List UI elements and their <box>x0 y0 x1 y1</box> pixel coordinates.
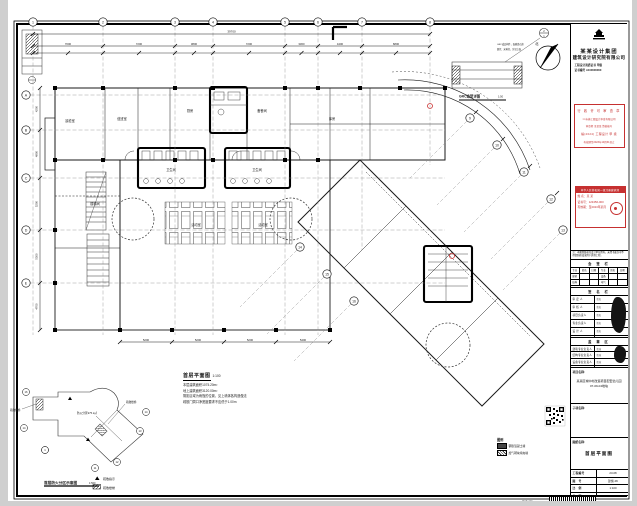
grid-bubble-label: 6 <box>317 20 319 24</box>
bed-arrays <box>165 202 292 244</box>
wall-detail-topleft <box>22 30 42 84</box>
column-mark <box>316 86 320 90</box>
keyplan-bubble-label: 14 <box>23 426 26 430</box>
north-label: 北 <box>535 41 539 46</box>
dim-label: 4800 <box>35 150 39 157</box>
column-mark <box>173 158 177 162</box>
grid-bubble-label: C <box>25 176 28 180</box>
signature-row-label: 设 计 人 <box>571 328 595 335</box>
room-label: 值班室 <box>117 116 127 121</box>
info-row-value: 建施-06 <box>597 478 628 485</box>
grid-line-diagonal <box>503 233 560 290</box>
column-mark <box>53 328 57 332</box>
grid-bubble-label: D <box>25 228 28 232</box>
grid-bubble-label: 4 <box>212 20 214 24</box>
dim-label: 4400 <box>337 42 344 46</box>
legend-label: 加气砌块填充墙 <box>509 451 529 455</box>
grid-bubble-label: 7 <box>361 20 363 24</box>
seal-row-label: 设备专业负责人 <box>571 359 595 365</box>
company-name-line2: 建筑设计研究院有限公司 <box>571 55 628 61</box>
signature-row-label: 审 定 人 <box>571 296 595 303</box>
info-row: 日 期2022.01.10 <box>571 493 628 497</box>
huiqian-cell <box>609 280 619 286</box>
grc-detail-note1: GRC成品构件，面刷真石漆 <box>497 42 525 46</box>
copyright-and-huiqian-box: 注：本图纸版权归设计单位所有，未经书面许可不得复制修改或用于其他工程。 会 签 … <box>571 250 628 287</box>
column-mark <box>170 328 174 332</box>
grid-bubble-label: 13 <box>561 228 565 232</box>
info-row: 比 例1:100 <box>571 485 628 493</box>
project-name-label: 项目名称: <box>571 368 628 374</box>
seal-row-label: 结构专业负责人 <box>571 352 595 358</box>
keyplan-stair-label-right: 疏散楼梯 <box>126 400 137 404</box>
legend-label: 钢筋混凝土墙 <box>509 444 526 448</box>
plan-title: 首层平面图 <box>183 372 211 381</box>
keyplan-stair-label-left: 疏散楼梯 <box>10 408 21 412</box>
company-logo-icon <box>591 29 607 41</box>
stamp1-line: 审查师 王某某 资格编号 <box>576 124 623 128</box>
info-row: 图 号建施-06 <box>571 478 628 486</box>
dim-label: 5200 <box>195 338 202 342</box>
grid-line-diagonal <box>464 175 521 232</box>
title-block: 某某设计集团 建筑设计研究院有限公司 工程设计资质证书 甲级 证书编号 A100… <box>570 24 628 496</box>
column-mark <box>316 158 320 162</box>
subitem-name-box: 子项名称: <box>571 403 628 437</box>
stamp1-line: 编(2024) 工程设计 甲 级 <box>576 132 623 136</box>
page-margin-right <box>632 0 637 506</box>
column-mark <box>358 86 362 90</box>
dim-label: 4200 <box>35 105 39 112</box>
column-mark <box>443 86 447 90</box>
info-row-value: 2022.01.10 <box>597 493 628 497</box>
copyright-note: 注：本图纸版权归设计单位所有，未经书面许可不得复制修改或用于其他工程。 <box>571 251 628 259</box>
grid-line-diagonal <box>267 277 324 334</box>
dim-label: 4700 <box>35 303 39 310</box>
column-mark <box>53 86 57 90</box>
room-label: 活动室 <box>191 222 201 227</box>
company-logo-block: 某某设计集团 建筑设计研究院有限公司 工程设计资质证书 甲级 证书编号 A100… <box>571 28 628 72</box>
drawing-name-label: 图纸名称: <box>571 438 628 444</box>
column-mark <box>53 158 57 162</box>
note-line: 疏散门洞口净宽度要求不应低于1.00m <box>183 400 348 405</box>
room-label: 卫生间 <box>166 167 176 172</box>
info-row-label: 图 号 <box>571 478 597 485</box>
toilet-room-blocks <box>138 87 472 302</box>
grid-bubble-label: 5 <box>284 20 286 24</box>
grid-bubble-label: 15 <box>325 272 329 276</box>
grid-bubble-label: 2 <box>102 20 104 24</box>
sanitary-fixtures <box>142 92 468 302</box>
grc-detail-title: GRC造型详图 <box>459 94 481 99</box>
seal-title: 盖 章 区 <box>571 338 628 346</box>
project-name-line1: 某某区城中村改造项目配套幼儿园 <box>571 379 628 383</box>
grid-bubble-label: 11 <box>522 170 526 174</box>
huiqian-cell: 结构 <box>571 280 581 286</box>
round-seal-icon <box>610 202 623 215</box>
dim-label: 5300 <box>35 253 39 260</box>
stairs <box>86 172 109 286</box>
dim-label: 7200 <box>136 42 143 46</box>
column-mark <box>328 328 332 332</box>
note-line: 本层建筑面积1075.20m² <box>183 383 348 388</box>
grid-line-diagonal <box>294 304 351 361</box>
grc-detail-note2: 颜色：米黄色，详见立面 <box>497 47 522 51</box>
material-legend: 图例 钢筋混凝土墙 加气砌块填充墙 <box>497 437 543 456</box>
grid-line-diagonal <box>240 250 297 307</box>
huiqian-cell <box>580 280 590 286</box>
seal-row-label: 建筑专业负责人 <box>571 346 595 352</box>
drawing-info-table: 工程编号23-08图 号建施-06比 例1:100日 期2022.01.10 <box>571 469 628 496</box>
keyplan-title: 首层防火分区示意图 <box>44 480 77 485</box>
keyplan-bubble-label: 13 <box>139 429 142 433</box>
dim-label: 5200 <box>35 200 39 207</box>
huiqian-cell: 电气 <box>599 280 609 286</box>
room-label: 卫生间 <box>252 167 262 172</box>
column-mark <box>222 328 226 332</box>
grid-line-diagonal <box>410 121 467 178</box>
info-row-value: 1:100 <box>597 485 628 492</box>
dim-label: 3800 <box>191 42 198 46</box>
grid-bubble-label: 10 <box>495 143 499 147</box>
room-label: 备餐间 <box>257 108 267 113</box>
project-name-line2: 07-09-04地块 <box>571 384 628 388</box>
revision-marks <box>428 104 455 259</box>
section-cut-mark <box>333 27 347 40</box>
dim-label: 5200 <box>247 338 254 342</box>
grc-tag-top: 2 <box>543 29 545 33</box>
material-legend-title: 图例 <box>497 437 543 442</box>
company-cert-line1: 工程设计资质证书 甲级 <box>571 63 628 67</box>
note-line: 地上建筑面积3120.00m² <box>183 389 348 394</box>
column-mark <box>53 228 57 232</box>
keyplan-bubble-label: 11 <box>94 466 97 470</box>
grc-detail <box>452 28 549 100</box>
grid-bubble-label: 16 <box>352 299 356 303</box>
column-mark <box>53 281 57 285</box>
dim-overall: 39700 <box>227 30 236 34</box>
page-margin-bottom <box>0 501 637 506</box>
signature-box: 签 名 栏 审 定 人签名审 核 人签名项目负责人签名专业负责人签名设 计 人签… <box>571 287 628 337</box>
qr-code <box>545 406 565 426</box>
column-mark <box>118 328 122 332</box>
column-mark <box>101 86 105 90</box>
huiqian-table: 专业姓名日期专业姓名日期建筑设备结构电气 <box>571 268 628 286</box>
drawing-name-box: 图纸名称: 首层平面图 <box>571 437 628 469</box>
keyplan-area-label: 防火分区975.2㎡ <box>77 411 97 415</box>
grid-bubble-label: 3 <box>174 20 176 24</box>
signature-title: 签 名 栏 <box>571 288 628 296</box>
column-mark <box>173 86 177 90</box>
info-row-value: 23-08 <box>597 470 628 477</box>
keyplan-bubble-label: 12 <box>116 460 119 464</box>
legend-swatch-block <box>497 450 507 456</box>
column-mark <box>283 86 287 90</box>
info-row-label: 工程编号 <box>571 470 597 477</box>
company-name-line1: 某某设计集团 <box>571 48 628 55</box>
keyplan-outline <box>22 388 143 486</box>
keyplan-legend2-label: 疏散楼梯 <box>103 485 115 490</box>
seal-blob <box>614 346 626 363</box>
huiqian-title: 会 签 栏 <box>571 259 628 268</box>
signature-row-label: 项目负责人 <box>571 312 595 319</box>
huiqian-cell <box>590 280 600 286</box>
company-cert-line2: 证书编号 A100000000 <box>571 68 628 72</box>
dim-label: 5200 <box>143 338 150 342</box>
keyplan-bubble-label: 14 <box>145 410 148 414</box>
column-mark <box>283 158 287 162</box>
info-row: 工程编号23-08 <box>571 470 628 478</box>
page-margin-left <box>0 0 8 506</box>
floor-plan-drawing: GRC造型详图 1:50 GRC成品构件，面刷真石漆 颜色：米黄色，详见立面 2… <box>0 0 637 506</box>
grid-line-diagonal <box>491 202 548 259</box>
signature-row-label: 专业负责人 <box>571 320 595 327</box>
grid-bubble-label: 14 <box>298 245 302 249</box>
dim-label: 3300 <box>298 42 305 46</box>
column-mark <box>101 158 105 162</box>
room-label: 活动室 <box>258 222 268 227</box>
registered-architect-stamp: 中华人民共和国一级注册建筑师 姓 名：某 某 证书号：123456-000 有效… <box>575 186 626 228</box>
info-row-label: 日 期 <box>571 493 597 497</box>
grid-line-diagonal <box>437 148 494 205</box>
legend-swatch-concrete <box>497 443 507 449</box>
dim-label: 7000 <box>65 42 72 46</box>
plan-notes: 首层平面图1:100 本层建筑面积1075.20m² 地上建筑面积3120.00… <box>183 364 348 404</box>
huiqian-cell <box>618 280 628 286</box>
review-approval-stamp: 行 政 许 可 审 查 章 ××市施工图设计审查有限公司 审查师 王某某 资格编… <box>574 104 625 148</box>
grid-bubble-label: 12 <box>549 197 553 201</box>
grid-bubble-label: 1 <box>32 20 34 24</box>
north-arrow-icon <box>536 44 560 70</box>
drawing-sheet-viewport: { "sheet": { "plan_title": "首层平面图", "pla… <box>0 0 637 506</box>
drawing-name-value: 首层平面图 <box>571 451 628 457</box>
subitem-name-label: 子项名称: <box>571 404 628 410</box>
room-label: 晨检室 <box>65 118 75 123</box>
stamp1-line: 有效期至2023年10月31日止 <box>576 140 623 144</box>
signature-blob <box>611 297 626 333</box>
project-name-box: 项目名称: 某某区城中村改造项目配套幼儿园 07-09-04地块 <box>571 367 628 403</box>
dim-label: 7200 <box>246 42 253 46</box>
signature-row-label: 审 核 人 <box>571 304 595 311</box>
keyplan-legend1-label: 疏散指示 <box>103 476 115 481</box>
column-mark <box>211 86 215 90</box>
room-label: 厨房 <box>187 108 193 113</box>
seal-box: 盖 章 区 建筑专业负责人签章结构专业负责人签章设备专业负责人签章电气专业负责人… <box>571 337 628 367</box>
grid-bubble-label: 9 <box>469 116 471 120</box>
column-mark <box>398 86 402 90</box>
dim-label: 6800 <box>393 42 400 46</box>
grc-detail-scale: 1:50 <box>498 95 504 99</box>
dim-label: 5400 <box>300 338 307 342</box>
info-row-label: 比 例 <box>571 485 597 492</box>
stamp1-line: ××市施工图设计审查有限公司 <box>576 117 623 121</box>
dim-tick <box>555 191 559 195</box>
note-line: 阴影区域为雨篷的位置，见上墙体各构造做法 <box>183 394 348 399</box>
room-label: 楼梯间 <box>90 201 100 206</box>
room-label: 库房 <box>329 116 335 121</box>
plan-title-scale: 1:100 <box>213 374 221 378</box>
sheet-frame <box>14 21 629 499</box>
column-mark <box>274 328 278 332</box>
grid-bubble-label: 8 <box>429 20 431 24</box>
column-mark <box>211 158 215 162</box>
stamp1-line: 行 政 许 可 审 查 章 <box>576 108 623 113</box>
keyplan-bubble-label: 16 <box>25 390 28 394</box>
